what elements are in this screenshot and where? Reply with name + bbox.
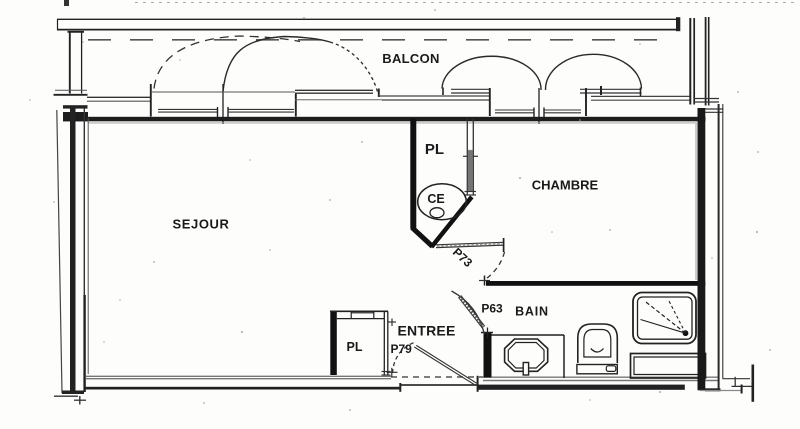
svg-text:PL: PL: [425, 141, 444, 158]
svg-text:CE: CE: [427, 192, 444, 206]
svg-text:P63: P63: [481, 302, 503, 316]
svg-text:SEJOUR: SEJOUR: [172, 217, 229, 232]
svg-text:BAIN: BAIN: [515, 305, 549, 319]
svg-text:P79: P79: [391, 342, 413, 356]
svg-text:CHAMBRE: CHAMBRE: [532, 178, 599, 193]
svg-text:PL: PL: [347, 340, 363, 354]
svg-text:BALCON: BALCON: [382, 51, 439, 66]
svg-text:ENTREE: ENTREE: [398, 323, 456, 339]
